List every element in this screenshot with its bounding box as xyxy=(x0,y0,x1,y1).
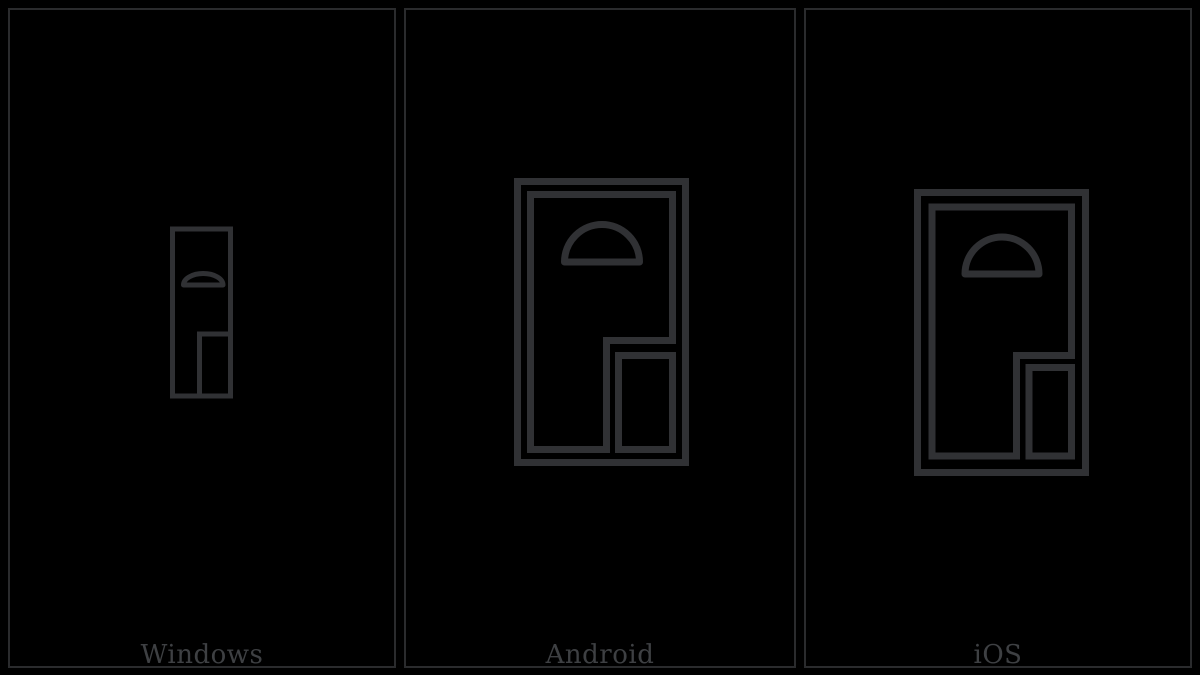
door-arched-window xyxy=(565,225,640,263)
door-small-panel xyxy=(619,356,673,450)
door-small-panel xyxy=(1029,368,1072,457)
panel-ios: iOS xyxy=(804,8,1192,668)
platform-label-ios: iOS xyxy=(806,642,1190,668)
glyph-comparison-image: Windows Android iOS xyxy=(0,0,1200,675)
door-small-panel xyxy=(200,334,231,396)
panel-windows: Windows xyxy=(8,8,396,668)
door-inner-frame xyxy=(531,195,673,450)
door-glyph-icon xyxy=(514,178,689,466)
platform-label-android: Android xyxy=(406,642,794,668)
platform-label-windows: Windows xyxy=(10,642,394,668)
door-glyph-icon xyxy=(914,189,1089,476)
panel-android: Android xyxy=(404,8,796,668)
door-arched-window xyxy=(184,274,224,286)
door-arched-window xyxy=(965,237,1039,274)
door-glyph-icon xyxy=(170,226,233,400)
door-inner-frame xyxy=(932,207,1072,456)
